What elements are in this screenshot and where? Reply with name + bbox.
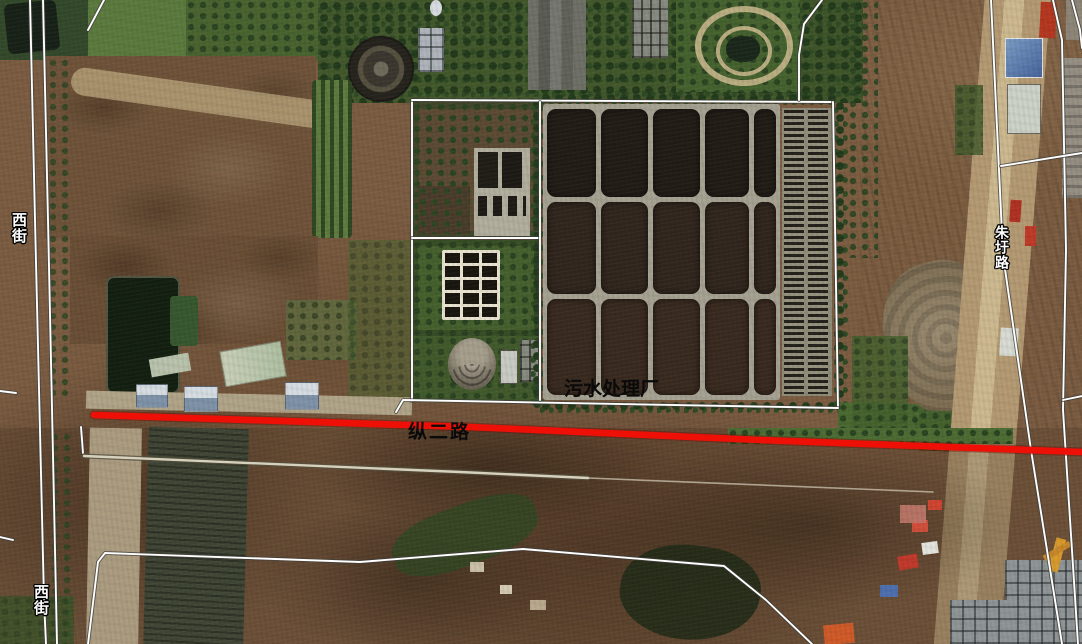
tank-basin-2 [502, 152, 522, 188]
hedge-right [848, 0, 878, 258]
filter-bed-structure [442, 250, 500, 320]
filter-cell [463, 280, 478, 290]
filter-cell [463, 293, 478, 303]
pool-basin [547, 202, 596, 294]
clarifier-striped-section [782, 108, 832, 396]
road-label-xijie-lower: 西街 [33, 584, 48, 616]
dirt-road-bottom [86, 428, 142, 644]
filter-cell [463, 266, 478, 276]
top-right-structure [1066, 0, 1082, 40]
pool-basin [547, 109, 596, 197]
pool-basin [601, 202, 648, 294]
dark-pond [106, 276, 180, 394]
red-roof-3 [928, 500, 942, 510]
aeration-tank-structure [474, 148, 530, 236]
pool-basin [705, 202, 749, 294]
pool-trees-bottom [540, 400, 838, 414]
road-label-xijie-upper: 西街 [11, 212, 26, 244]
truck-1 [1009, 200, 1022, 223]
filter-cell [445, 253, 460, 263]
pool-basin [653, 109, 700, 197]
veg-near-mound [852, 336, 908, 428]
pool-basin [705, 109, 749, 197]
filter-cell [445, 307, 460, 317]
grid-building [632, 0, 668, 58]
pool-basin [754, 109, 776, 197]
roadside-trees-upper [48, 58, 72, 398]
light-shed-a [470, 562, 484, 572]
pink-cluster [900, 505, 926, 523]
water-tower [430, 0, 442, 16]
facility-label-sewage-plant: 污水处理厂 [564, 374, 659, 401]
green-tuft-right [955, 85, 983, 155]
green-pond [170, 296, 198, 346]
pool-basin [754, 202, 776, 294]
digester-dome [448, 338, 496, 390]
orange-building-bottom [823, 623, 855, 644]
pool-basin [601, 109, 648, 197]
orchard-rows [312, 80, 352, 238]
concrete-structures-2 [950, 600, 1010, 644]
pool-trees-right [834, 100, 848, 410]
plot-orchard-dots [418, 186, 470, 234]
road-label-zongerlu: 纵二路 [408, 417, 471, 444]
filter-cell [463, 253, 478, 263]
filter-cell [445, 293, 460, 303]
concrete-structures-1 [1005, 560, 1082, 644]
striped-bed-2 [808, 110, 828, 394]
filter-cell [482, 266, 497, 276]
filter-cell [482, 280, 497, 290]
circular-clarifier-tank [348, 36, 414, 102]
filter-cell [445, 266, 460, 276]
far-right-buildings [1062, 58, 1082, 198]
filter-cell [463, 307, 478, 317]
roadside-building-1 [136, 384, 168, 408]
pool-basin [705, 299, 749, 395]
pool-basin [653, 299, 700, 395]
workshop-building [528, 0, 586, 90]
green-strip-along-road-right [728, 428, 1013, 444]
striped-bed-1 [784, 110, 804, 394]
garden-pond [726, 36, 760, 62]
shed-near-dome [500, 350, 518, 384]
green-patch-top [186, 0, 326, 60]
filter-cell [482, 293, 497, 303]
filter-cell [482, 253, 497, 263]
filter-cell [445, 280, 460, 290]
blue-roof-building [1005, 38, 1043, 78]
tank-cell-row [478, 196, 526, 216]
tank-basin-1 [478, 152, 498, 188]
pond-topleft [4, 0, 61, 55]
road-label-zhuweilu: 朱圩路 [995, 225, 1009, 270]
blue-roof-small [880, 585, 898, 597]
pool-basin [653, 202, 700, 294]
roadside-building-3 [285, 382, 319, 410]
white-shed-lower [999, 328, 1018, 357]
veg-patch-mid [286, 300, 356, 360]
treatment-pool-grid [543, 104, 780, 400]
dome-rings [450, 364, 494, 388]
satellite-map-canvas[interactable]: 西街 西街 朱圩路 纵二路 污水处理厂 [0, 0, 1082, 644]
railway-band [143, 427, 249, 644]
small-building [418, 28, 444, 72]
field-bright [88, 0, 188, 62]
white-sheds [1007, 84, 1041, 134]
roadside-building-2 [184, 386, 218, 412]
red-container [1039, 2, 1057, 39]
veg-strip-west-of-plant [348, 240, 412, 400]
pool-basin [754, 299, 776, 395]
light-shed-b [500, 585, 512, 594]
white-shed-construction [921, 541, 939, 555]
light-shed-c [530, 600, 546, 610]
filter-cell [482, 307, 497, 317]
truck-2 [1025, 226, 1036, 246]
